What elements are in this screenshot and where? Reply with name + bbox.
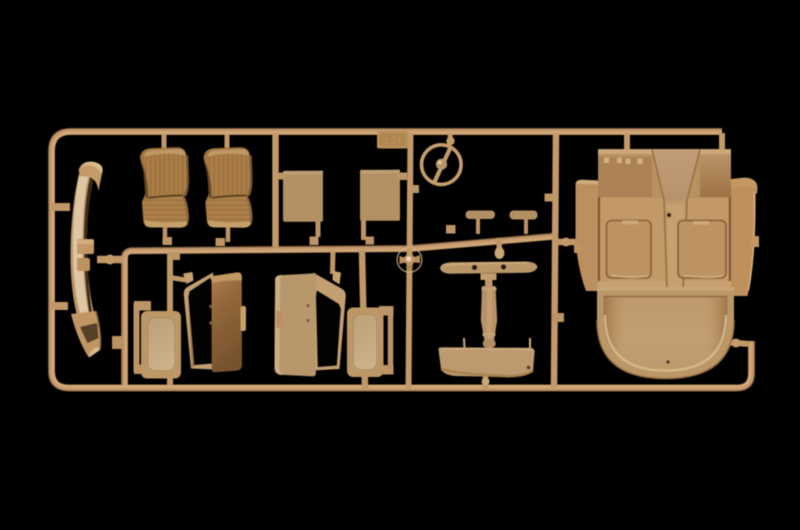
svg-text:1:24: 1:24 <box>384 136 402 146</box>
